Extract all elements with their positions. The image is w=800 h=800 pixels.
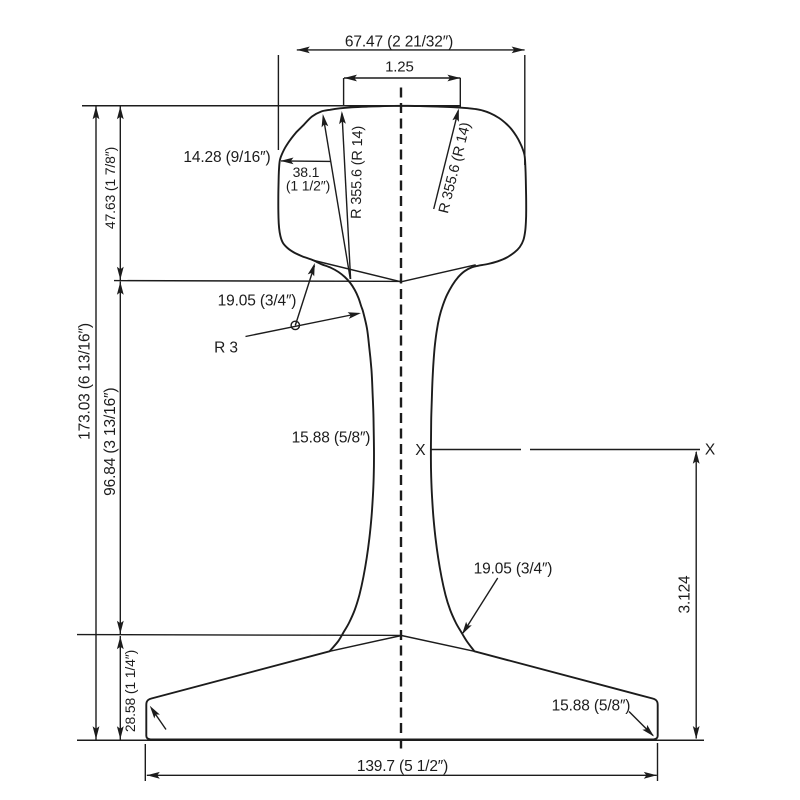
svg-text:(1 1/2″): (1 1/2″) [286,178,330,194]
svg-text:139.7 (5 1/2″): 139.7 (5 1/2″) [357,758,448,775]
svg-text:1.25: 1.25 [385,59,414,76]
svg-text:R 3: R 3 [214,340,238,357]
svg-text:173.03 (6 13/16″): 173.03 (6 13/16″) [77,323,94,440]
svg-text:X: X [415,442,426,459]
svg-text:14.28 (9/16″): 14.28 (9/16″) [183,149,270,166]
svg-text:15.88 (5/8″): 15.88 (5/8″) [292,430,371,447]
svg-text:3.124: 3.124 [677,575,694,614]
svg-text:X: X [705,442,716,459]
svg-text:19.05 (3/4″): 19.05 (3/4″) [218,293,297,310]
svg-text:96.84 (3 13/16″): 96.84 (3 13/16″) [102,388,119,496]
svg-text:19.05 (3/4″): 19.05 (3/4″) [474,561,553,578]
svg-text:67.47 (2 21/32″): 67.47 (2 21/32″) [345,34,453,51]
svg-text:47.63 (1 7/8″): 47.63 (1 7/8″) [102,147,118,229]
svg-text:28.58 (1 1/4″): 28.58 (1 1/4″) [122,650,138,732]
svg-text:R 355.6 (R 14): R 355.6 (R 14) [349,126,367,219]
svg-text:15.88 (5/8″): 15.88 (5/8″) [552,698,631,715]
